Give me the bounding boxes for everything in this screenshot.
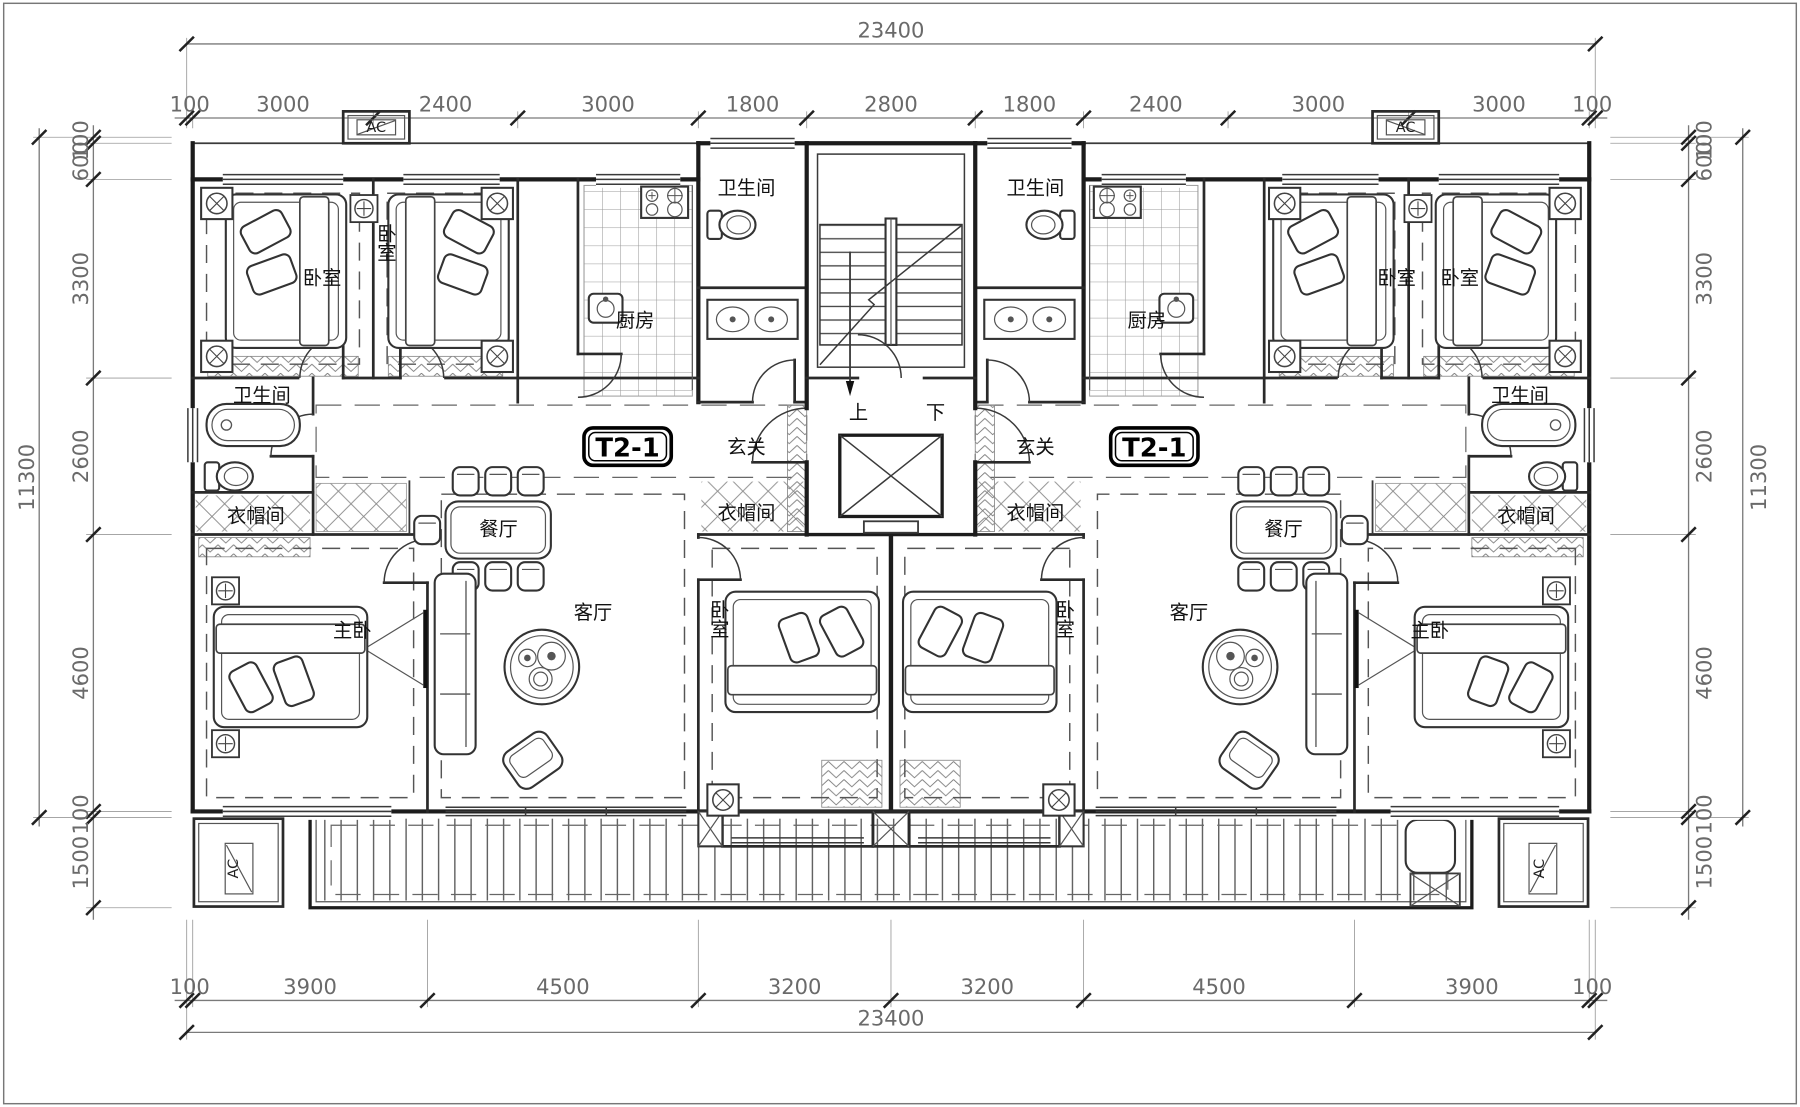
room-label-entry: 玄关 xyxy=(1016,435,1055,458)
room-label-bedroom: 卧室 xyxy=(1052,599,1075,638)
dim-total-left: 11300 xyxy=(14,444,39,511)
dim-label: 3900 xyxy=(283,974,337,999)
room-label-cloakroom: 衣帽间 xyxy=(1007,501,1065,524)
room-label-bedroom: 卧室 xyxy=(1441,267,1480,290)
dim-label: 2400 xyxy=(419,91,473,116)
dim-label: 100 xyxy=(170,91,210,116)
dim-label: 600 xyxy=(68,141,93,181)
room-label-master: 主卧 xyxy=(1410,619,1449,642)
dim-label: 2600 xyxy=(1691,429,1716,483)
dim-label: 100 xyxy=(68,794,93,834)
dim-label: 100 xyxy=(1572,91,1612,116)
dim-label: 3000 xyxy=(581,91,635,116)
stair-down-label: 下 xyxy=(926,401,945,424)
dim-label: 100 xyxy=(1572,974,1612,999)
dim-label: 2800 xyxy=(864,91,918,116)
balcony-cabinet xyxy=(1406,820,1455,873)
dim-label: 1800 xyxy=(726,91,780,116)
ac-label: AC xyxy=(1532,859,1548,879)
dim-label: 3000 xyxy=(1292,91,1346,116)
room-label-kitchen: 厨房 xyxy=(1128,309,1167,332)
dim-total-right: 11300 xyxy=(1746,444,1771,511)
dim-total-top: 23400 xyxy=(857,17,924,42)
room-label-master: 主卧 xyxy=(333,619,372,642)
room-label-living: 客厅 xyxy=(1170,601,1209,624)
dim-label: 2600 xyxy=(68,429,93,483)
dim-label: 4600 xyxy=(68,646,93,700)
dim-label: 3000 xyxy=(256,91,310,116)
room-label-dining: 餐厅 xyxy=(1264,518,1303,541)
room-label-cloakroom: 衣帽间 xyxy=(227,504,285,527)
dim-label: 1500 xyxy=(1691,836,1716,890)
dim-label: 100 xyxy=(170,974,210,999)
drawing-sheet: 100 3000 2400 3000 1800 2800 1800 2400 3… xyxy=(0,0,1800,1107)
dim-label: 2400 xyxy=(1129,91,1183,116)
unit-tag-label: T2-1 xyxy=(1122,433,1186,463)
dim-label: 1800 xyxy=(1003,91,1057,116)
unit-tag-left: T2-1 xyxy=(584,428,671,465)
ac-label: AC xyxy=(366,120,386,136)
room-label-cloakroom: 衣帽间 xyxy=(1497,504,1555,527)
dim-label: 3300 xyxy=(68,252,93,306)
room-label-living: 客厅 xyxy=(574,601,613,624)
room-label-bathroom: 卫生间 xyxy=(1491,384,1549,407)
unit-tag-label: T2-1 xyxy=(595,433,659,463)
room-label-kitchen: 厨房 xyxy=(616,309,655,332)
room-label-dining: 餐厅 xyxy=(479,518,518,541)
stair-up-label: 上 xyxy=(849,401,868,424)
dim-label: 3300 xyxy=(1691,252,1716,306)
dim-label: 3000 xyxy=(1472,91,1526,116)
room-label-cloakroom: 衣帽间 xyxy=(718,501,776,524)
dim-label: 4500 xyxy=(1192,974,1246,999)
dim-label: 600 xyxy=(1691,141,1716,181)
room-label-bedroom: 卧室 xyxy=(303,267,342,290)
dim-label: 100 xyxy=(1691,794,1716,834)
room-label-bedroom: 卧室 xyxy=(1377,267,1416,290)
balcony xyxy=(310,811,1472,907)
dim-label: 1500 xyxy=(68,836,93,890)
room-label-bathroom: 卫生间 xyxy=(718,176,776,199)
room-label-entry: 玄关 xyxy=(727,435,766,458)
room-label-bedroom: 卧室 xyxy=(374,223,397,262)
dim-label: 3200 xyxy=(768,974,822,999)
floor-plan-canvas: 100 3000 2400 3000 1800 2800 1800 2400 3… xyxy=(0,0,1800,1107)
dim-label: 3900 xyxy=(1445,974,1499,999)
dim-total-bottom: 23400 xyxy=(857,1006,924,1031)
dim-label: 3200 xyxy=(960,974,1014,999)
room-label-bedroom: 卧室 xyxy=(707,599,730,638)
ac-label: AC xyxy=(226,859,242,879)
dim-label: 4600 xyxy=(1691,646,1716,700)
unit-tag-right: T2-1 xyxy=(1111,428,1198,465)
ac-label: AC xyxy=(1396,120,1416,136)
dim-label: 4500 xyxy=(536,974,590,999)
room-label-bathroom: 卫生间 xyxy=(233,384,291,407)
room-label-bathroom: 卫生间 xyxy=(1007,176,1065,199)
